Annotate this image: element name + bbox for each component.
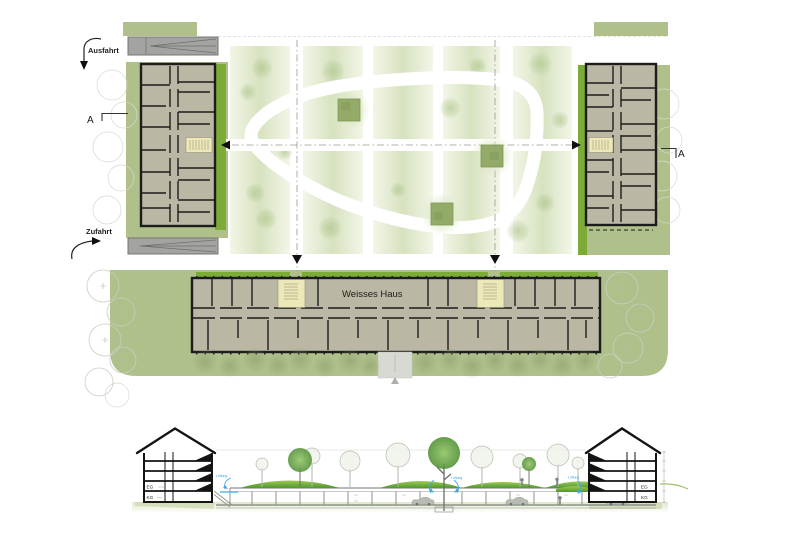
section-marker-left-tick bbox=[102, 114, 128, 122]
stair-core-west bbox=[278, 280, 305, 308]
section-view: EG KG EG KG Lüftun bbox=[132, 429, 688, 514]
south-exit-ramp bbox=[378, 352, 412, 384]
green-facade-strip-left-building bbox=[215, 64, 226, 230]
car-icon-2 bbox=[506, 497, 528, 505]
stair-core bbox=[589, 138, 613, 153]
floor-label-kg-left: KG bbox=[147, 495, 154, 500]
vent-center-label: Lüftung bbox=[451, 476, 462, 480]
vent-right-label: Lüftung bbox=[568, 476, 579, 480]
vent-left-label: Lüftung bbox=[216, 474, 227, 478]
roof bbox=[586, 429, 660, 454]
architectural-drawing-sheet: Weisses Haus Ausfahrt bbox=[0, 0, 800, 534]
floor-label-eg-left: EG bbox=[147, 485, 154, 490]
stair-core-east bbox=[477, 280, 504, 308]
left-building-section: EG KG bbox=[137, 429, 215, 503]
elevation-ticks bbox=[354, 495, 568, 501]
site-plan: Weisses Haus Ausfahrt bbox=[72, 22, 685, 407]
drawing-canvas: Weisses Haus Ausfahrt bbox=[0, 0, 800, 534]
leafy-trees-green bbox=[288, 437, 536, 512]
right-building-plan bbox=[586, 64, 656, 230]
right-building-section: EG KG bbox=[586, 429, 666, 504]
section-marker-left-label: A bbox=[87, 115, 94, 126]
access-annotation: Zufahrt bbox=[72, 227, 113, 259]
roof bbox=[137, 429, 215, 454]
green-strip-top-left bbox=[123, 22, 197, 36]
entrance-arrow-south-2-icon bbox=[490, 255, 500, 264]
entrance-arrow-south-1-icon bbox=[292, 255, 302, 264]
floor-label-kg-right: KG bbox=[641, 495, 648, 500]
access-arrow-icon bbox=[72, 241, 92, 259]
exit-label: Ausfahrt bbox=[88, 46, 119, 55]
stair-core bbox=[186, 138, 212, 153]
section-marker-left: A bbox=[87, 114, 128, 127]
section-marker-right-label: A bbox=[678, 149, 685, 160]
green-strip-top-right bbox=[594, 22, 668, 36]
left-building-plan bbox=[141, 64, 215, 226]
main-building-label: Weisses Haus bbox=[342, 289, 403, 300]
access-label: Zufahrt bbox=[86, 227, 112, 236]
entry-ramp bbox=[128, 238, 218, 254]
exit-annotation: Ausfahrt bbox=[80, 38, 119, 70]
main-building-plan: Weisses Haus bbox=[192, 277, 600, 384]
car-icon-1 bbox=[412, 497, 434, 505]
exit-ramp bbox=[128, 37, 218, 55]
dimension-scale bbox=[662, 451, 666, 503]
vent-left: Lüftung bbox=[216, 474, 238, 492]
floor-label-eg-right: EG bbox=[641, 485, 648, 490]
